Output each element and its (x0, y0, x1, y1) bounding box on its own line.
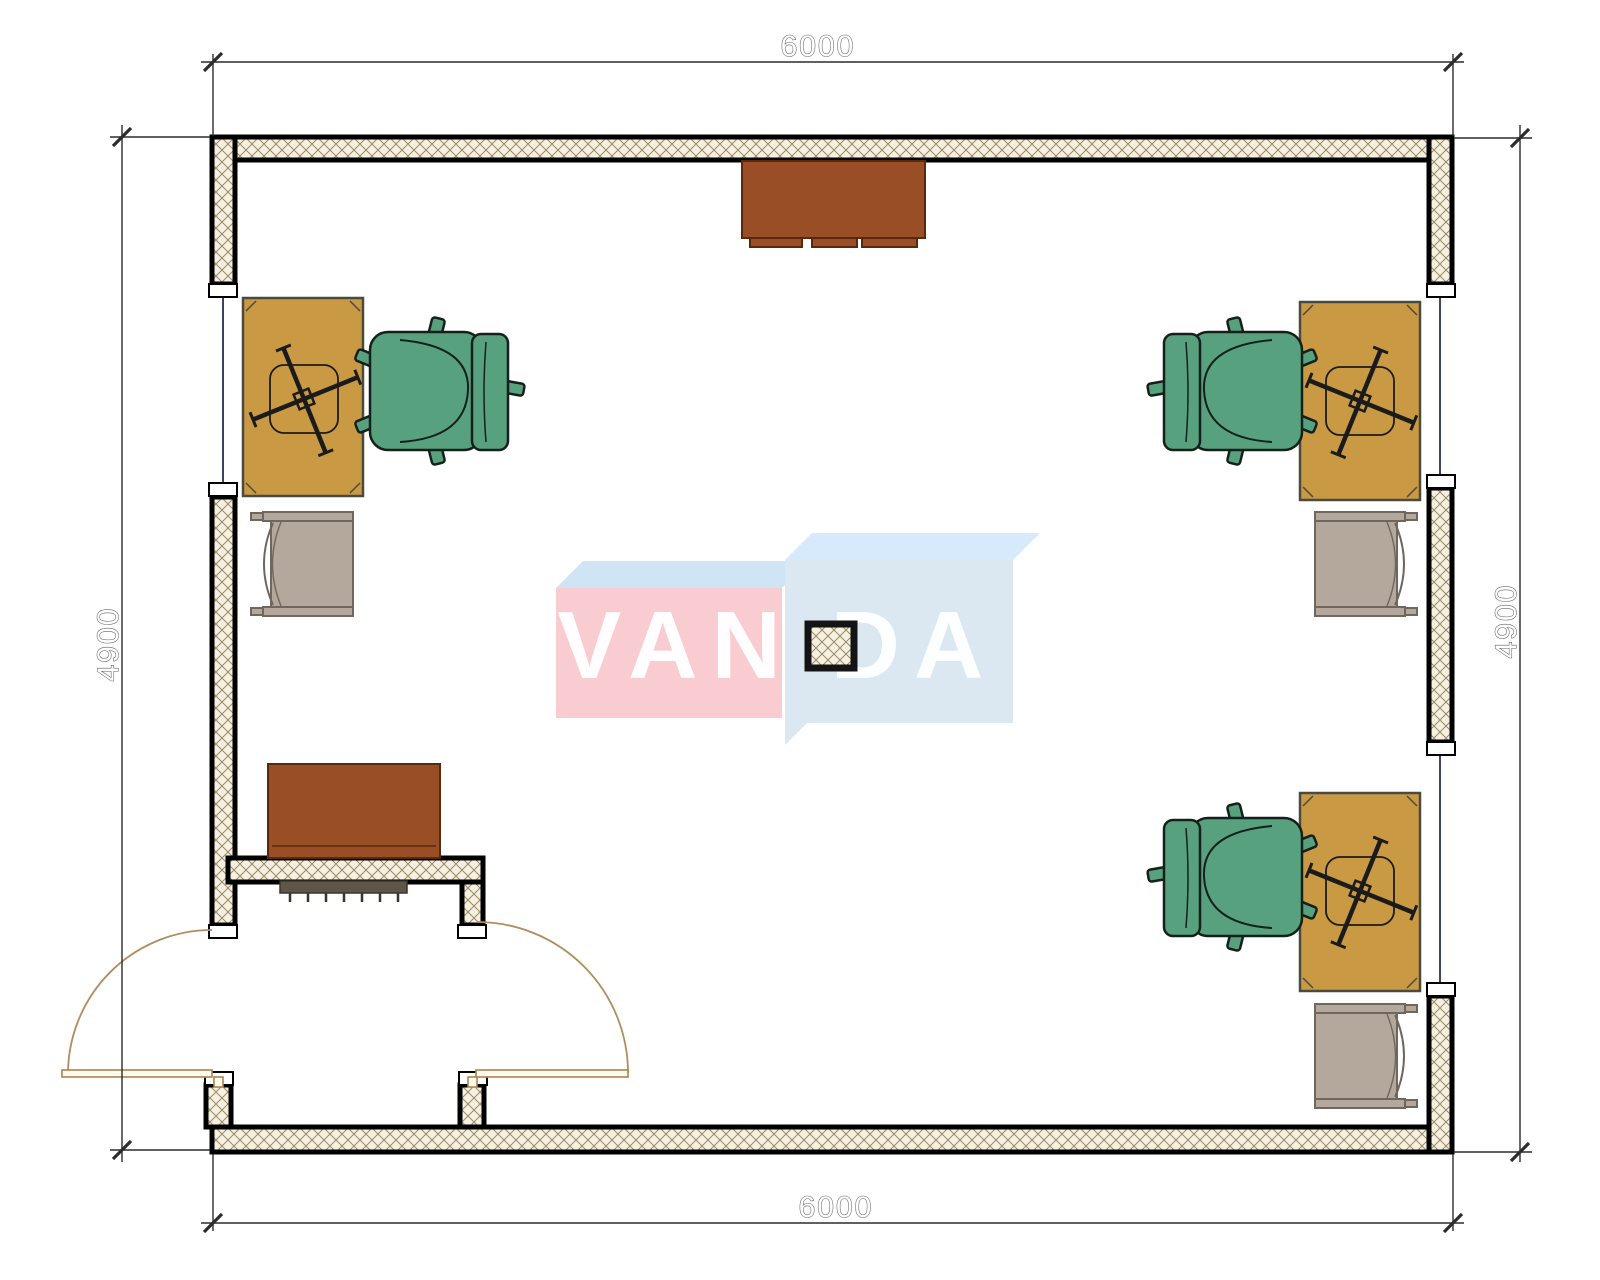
wall-right-upper (1429, 137, 1452, 284)
watermark-box-foot (785, 723, 807, 745)
window-frame (1427, 284, 1455, 297)
wall-door-stub-right (460, 1085, 484, 1127)
dim-label-right: 4900 (1490, 584, 1523, 659)
cabinets (268, 161, 925, 858)
office-chair-top-right (1147, 317, 1317, 465)
door-frame-left (209, 925, 237, 938)
wall-vestibule-horizontal (228, 858, 483, 882)
door-leaf-left (62, 1070, 212, 1077)
window-frame (1427, 983, 1455, 996)
entrance-door (62, 922, 628, 1087)
door-frame-right (458, 925, 486, 938)
watermark-text-left: VAN (557, 592, 795, 699)
side-chair-top-right (1315, 512, 1417, 616)
door-hinge-right (468, 1077, 477, 1087)
door-leaf-right (476, 1070, 628, 1077)
office-chair-bottom-right (1147, 803, 1317, 951)
window-frame (1427, 475, 1455, 488)
cabinet-top-foot (812, 238, 857, 247)
side-chair-bottom-right (1315, 1004, 1417, 1108)
door-hinge-left (214, 1077, 223, 1087)
wall-right-lower (1429, 996, 1452, 1152)
cabinet-bottom-left (268, 764, 440, 858)
cabinet-top-foot (750, 238, 802, 247)
dim-label-bottom: 6000 (799, 1191, 874, 1224)
wall-right-mid (1429, 488, 1452, 742)
door-swing-arc-right (477, 922, 628, 1073)
floor-plan-page: VAN DA (0, 0, 1600, 1280)
wall-top (212, 137, 1452, 160)
watermark-box-top-left (556, 561, 809, 588)
dim-label-left: 4900 (92, 607, 125, 682)
cabinet-top (742, 161, 925, 238)
window-frame (1427, 742, 1455, 755)
dim-label-top: 6000 (781, 30, 856, 63)
watermark-logo: VAN DA (556, 533, 1040, 745)
wall-left-upper (212, 137, 235, 284)
side-chair-top-left (251, 512, 353, 616)
wall-door-stub-left (206, 1085, 231, 1127)
radiator (280, 881, 407, 902)
office-chair-top-left (354, 317, 524, 465)
door-swing-arc-left (68, 930, 212, 1074)
structural-column (808, 624, 854, 668)
wall-vestibule-pier (462, 882, 483, 925)
watermark-box-top-right (785, 533, 1040, 560)
cabinet-top-foot (862, 238, 917, 247)
floor-plan-drawing: VAN DA (0, 0, 1600, 1280)
wall-bottom (212, 1127, 1452, 1152)
window-frame (209, 483, 237, 496)
window-frame (209, 284, 237, 297)
